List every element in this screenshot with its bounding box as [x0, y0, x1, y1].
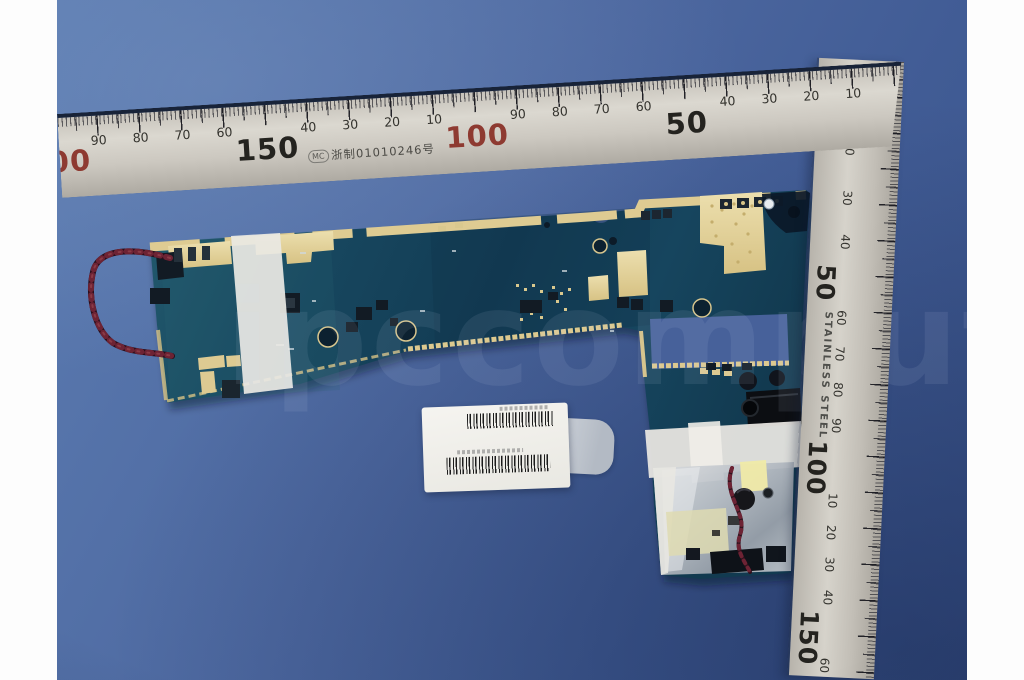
ruler-number: 40	[838, 234, 853, 250]
watermark-text: ipccomputer	[225, 262, 1024, 416]
ruler-number: 30	[342, 116, 359, 132]
photo-of-tablet-motherboard: ipccomputer 10 20 30 40 50 60 70 80 90 1…	[0, 0, 1024, 680]
screw-hole-bright	[764, 199, 774, 209]
ruler-number-big: 150	[235, 130, 301, 168]
ruler-number: 60	[635, 98, 652, 114]
ruler-number: 90	[509, 106, 526, 122]
ruler-number-big: 50	[665, 105, 709, 142]
ruler-number: 40	[300, 119, 317, 135]
ruler-number: 60	[817, 658, 832, 674]
ruler-number: 30	[761, 90, 778, 106]
ruler-number: 80	[132, 129, 149, 145]
ruler-number: 60	[834, 310, 849, 326]
ruler-number: 20	[384, 114, 401, 130]
ruler-number-big: 100	[444, 117, 510, 155]
ruler-number: 90	[829, 418, 844, 434]
board-hole	[609, 237, 617, 245]
white-border-left	[0, 0, 57, 680]
ruler-number: 70	[832, 346, 847, 362]
ruler-number: 70	[174, 127, 191, 143]
ruler-number: 40	[820, 590, 835, 606]
ruler-number: 10	[825, 493, 840, 509]
ruler-number: 20	[803, 88, 820, 104]
ruler-number: 30	[840, 190, 855, 206]
ruler-number: 40	[719, 93, 736, 109]
barcode	[446, 454, 551, 475]
board-hole	[544, 222, 550, 228]
corner-hole	[788, 206, 800, 218]
ruler-number: 10	[426, 111, 443, 127]
ruler-number: 80	[551, 103, 568, 119]
ruler-number: 60	[216, 124, 233, 140]
ruler-number-big: 50	[810, 264, 841, 302]
ruler-number: 70	[593, 101, 610, 117]
ruler-number: 20	[824, 525, 839, 541]
gold-pad-bright	[740, 460, 768, 492]
ruler-number: 80	[831, 382, 846, 398]
label-text-smudge	[457, 448, 523, 454]
mc-certification-mark: MC	[308, 149, 329, 163]
board-hole	[763, 488, 773, 498]
ruler-number: 10	[845, 85, 862, 101]
ruler-number: 30	[822, 557, 837, 573]
ruler-number-big: 100	[801, 440, 833, 497]
certification-number-text: 浙制01010246号	[331, 141, 436, 163]
ruler-number: 90	[90, 132, 107, 148]
white-border-right	[967, 0, 1024, 680]
